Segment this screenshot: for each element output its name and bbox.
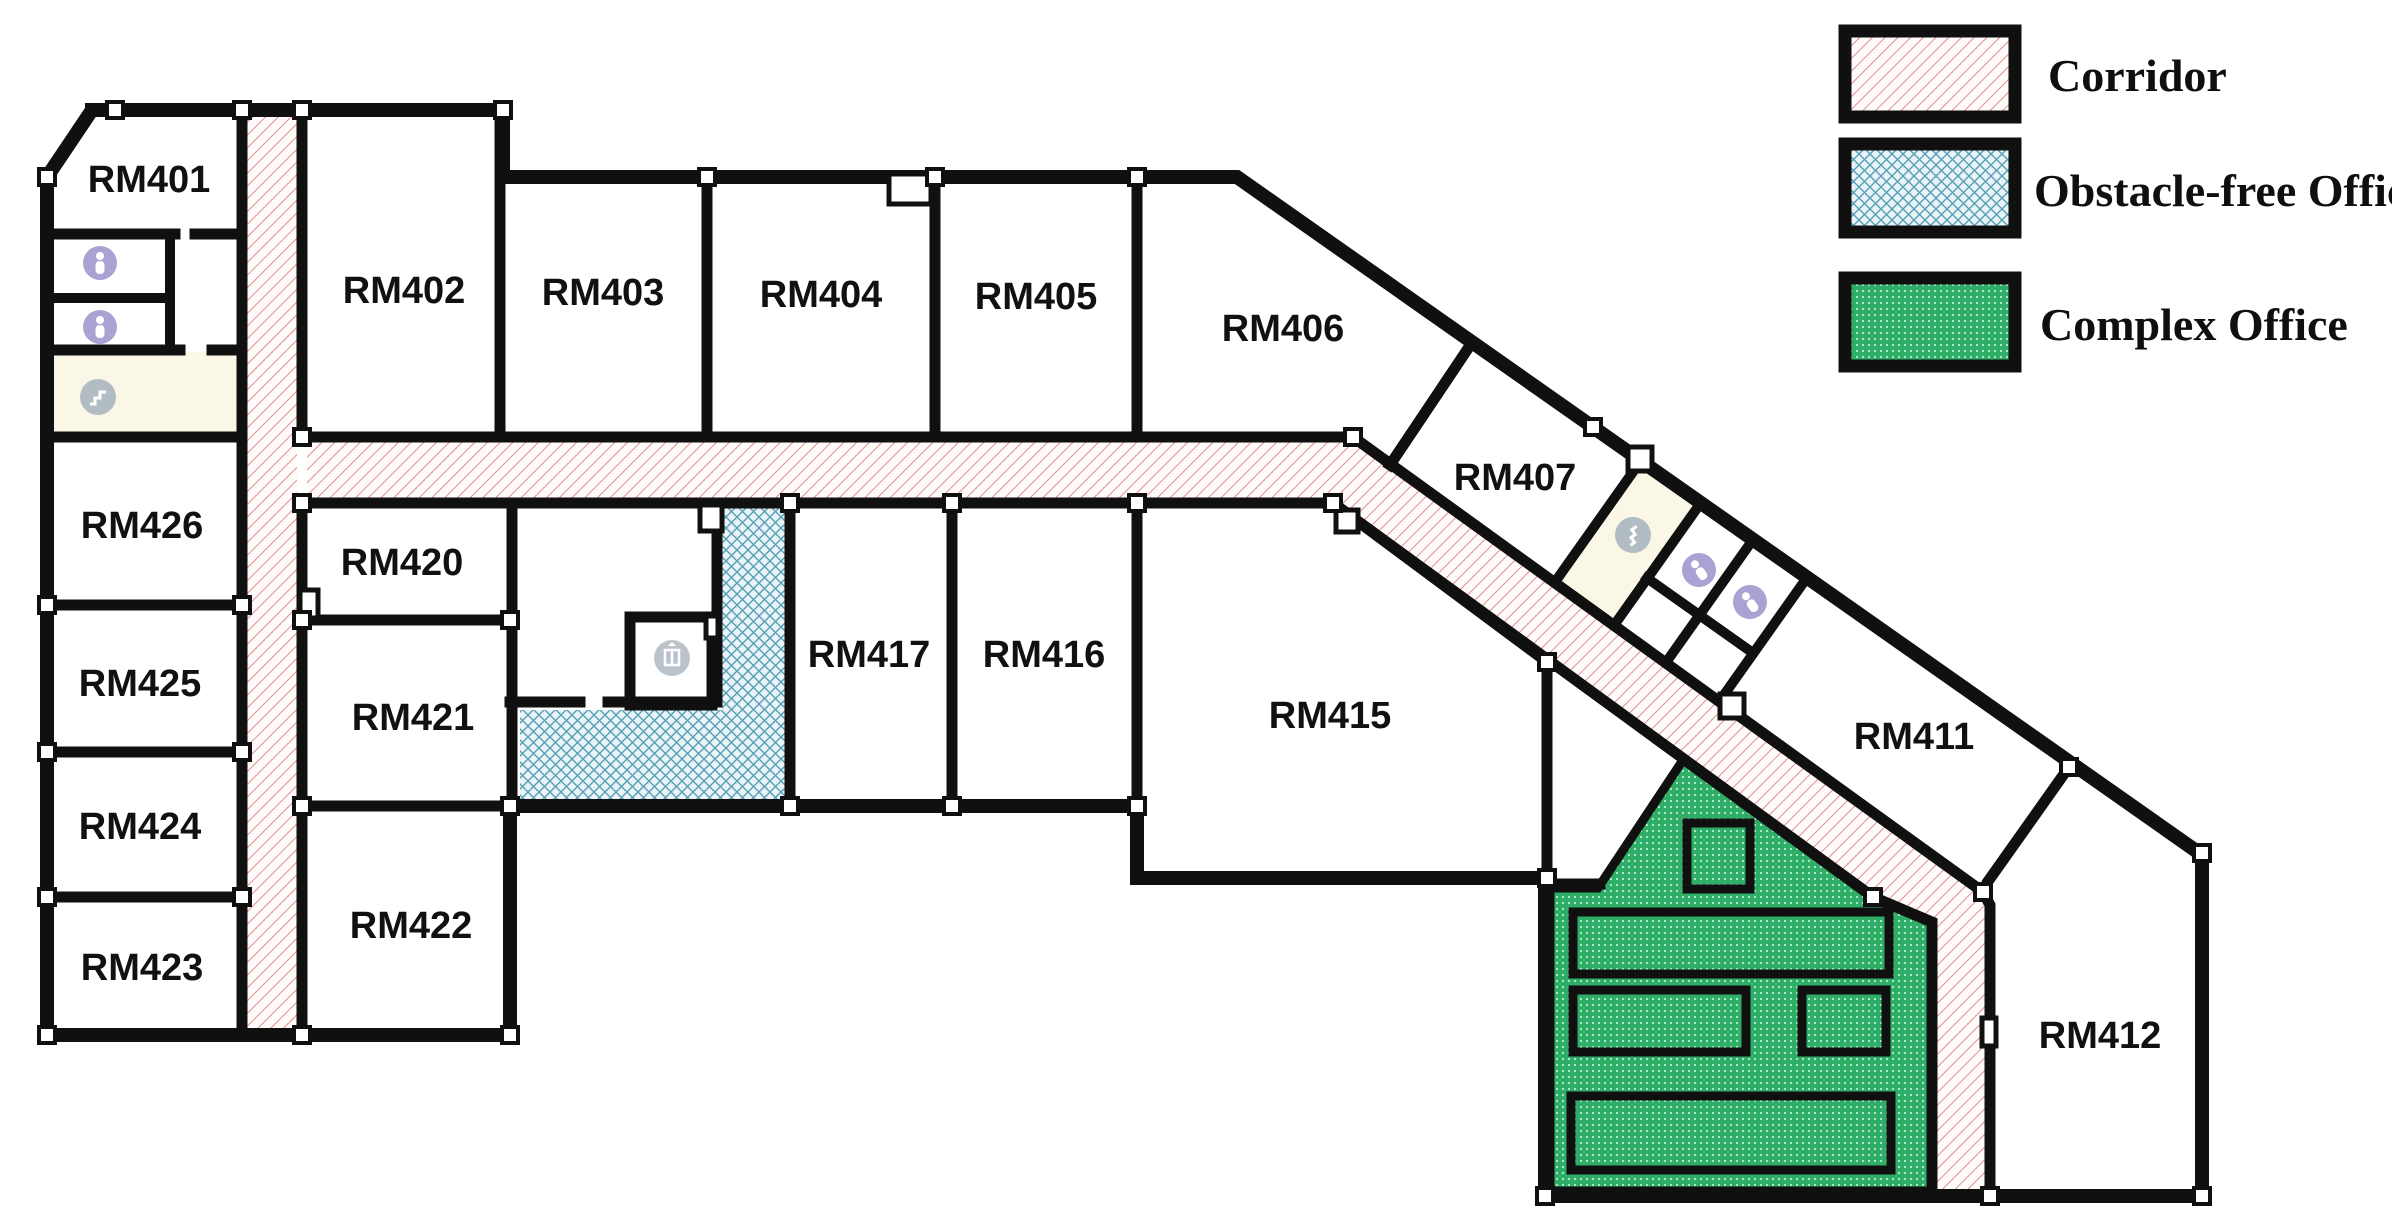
legend-swatch-obstacle-free-office: [1845, 144, 2015, 232]
restroom-icon: [83, 310, 117, 344]
room-rm425-label: RM425: [79, 663, 202, 705]
obstacle-free-office-region: [520, 508, 785, 800]
legend-swatch-complex-office: [1845, 278, 2015, 366]
room-rm420-label: RM420: [341, 542, 464, 584]
legend-label-corridor: Corridor: [2048, 50, 2227, 101]
stairs-icon: [80, 379, 116, 415]
room-rm423-label: RM423: [81, 947, 204, 989]
room-rm403-label: RM403: [542, 272, 665, 314]
elevator-icon: [654, 640, 690, 676]
floorplan-canvas: RM401 RM402 RM403 RM404 RM405 RM406 RM40…: [0, 0, 2392, 1218]
room-rm405-label: RM405: [975, 276, 1098, 318]
room-rm415-label: RM415: [1269, 695, 1392, 737]
legend: Corridor Obstacle-free Office Complex Of…: [1845, 31, 2392, 366]
room-rm416-label: RM416: [983, 634, 1106, 676]
legend-swatch-corridor: [1845, 31, 2015, 117]
room-rm406-label: RM406: [1222, 308, 1345, 350]
room-rm421-label: RM421: [352, 697, 475, 739]
room-rm426-label: RM426: [81, 505, 204, 547]
room-rm404-label: RM404: [760, 274, 883, 316]
room-rm412-label: RM412: [2039, 1015, 2162, 1057]
room-rm401-label: RM401: [88, 159, 211, 201]
legend-label-complex-office: Complex Office: [2040, 299, 2348, 350]
room-rm417-label: RM417: [808, 634, 931, 676]
room-rm407-label: RM407: [1454, 457, 1577, 499]
room-rm424-label: RM424: [79, 806, 202, 848]
room-rm402-label: RM402: [343, 270, 466, 312]
corridor-vertical: [247, 114, 297, 1035]
floorplan-page: RM401 RM402 RM403 RM404 RM405 RM406 RM40…: [0, 0, 2392, 1218]
restroom-icon: [83, 246, 117, 280]
restroom-icon: [1726, 578, 1773, 625]
room-rm411-label: RM411: [1854, 716, 1974, 758]
stairs-room-left: [52, 352, 238, 434]
legend-label-obstacle-free-office: Obstacle-free Office: [2034, 165, 2392, 216]
room-rm422-label: RM422: [350, 905, 473, 947]
